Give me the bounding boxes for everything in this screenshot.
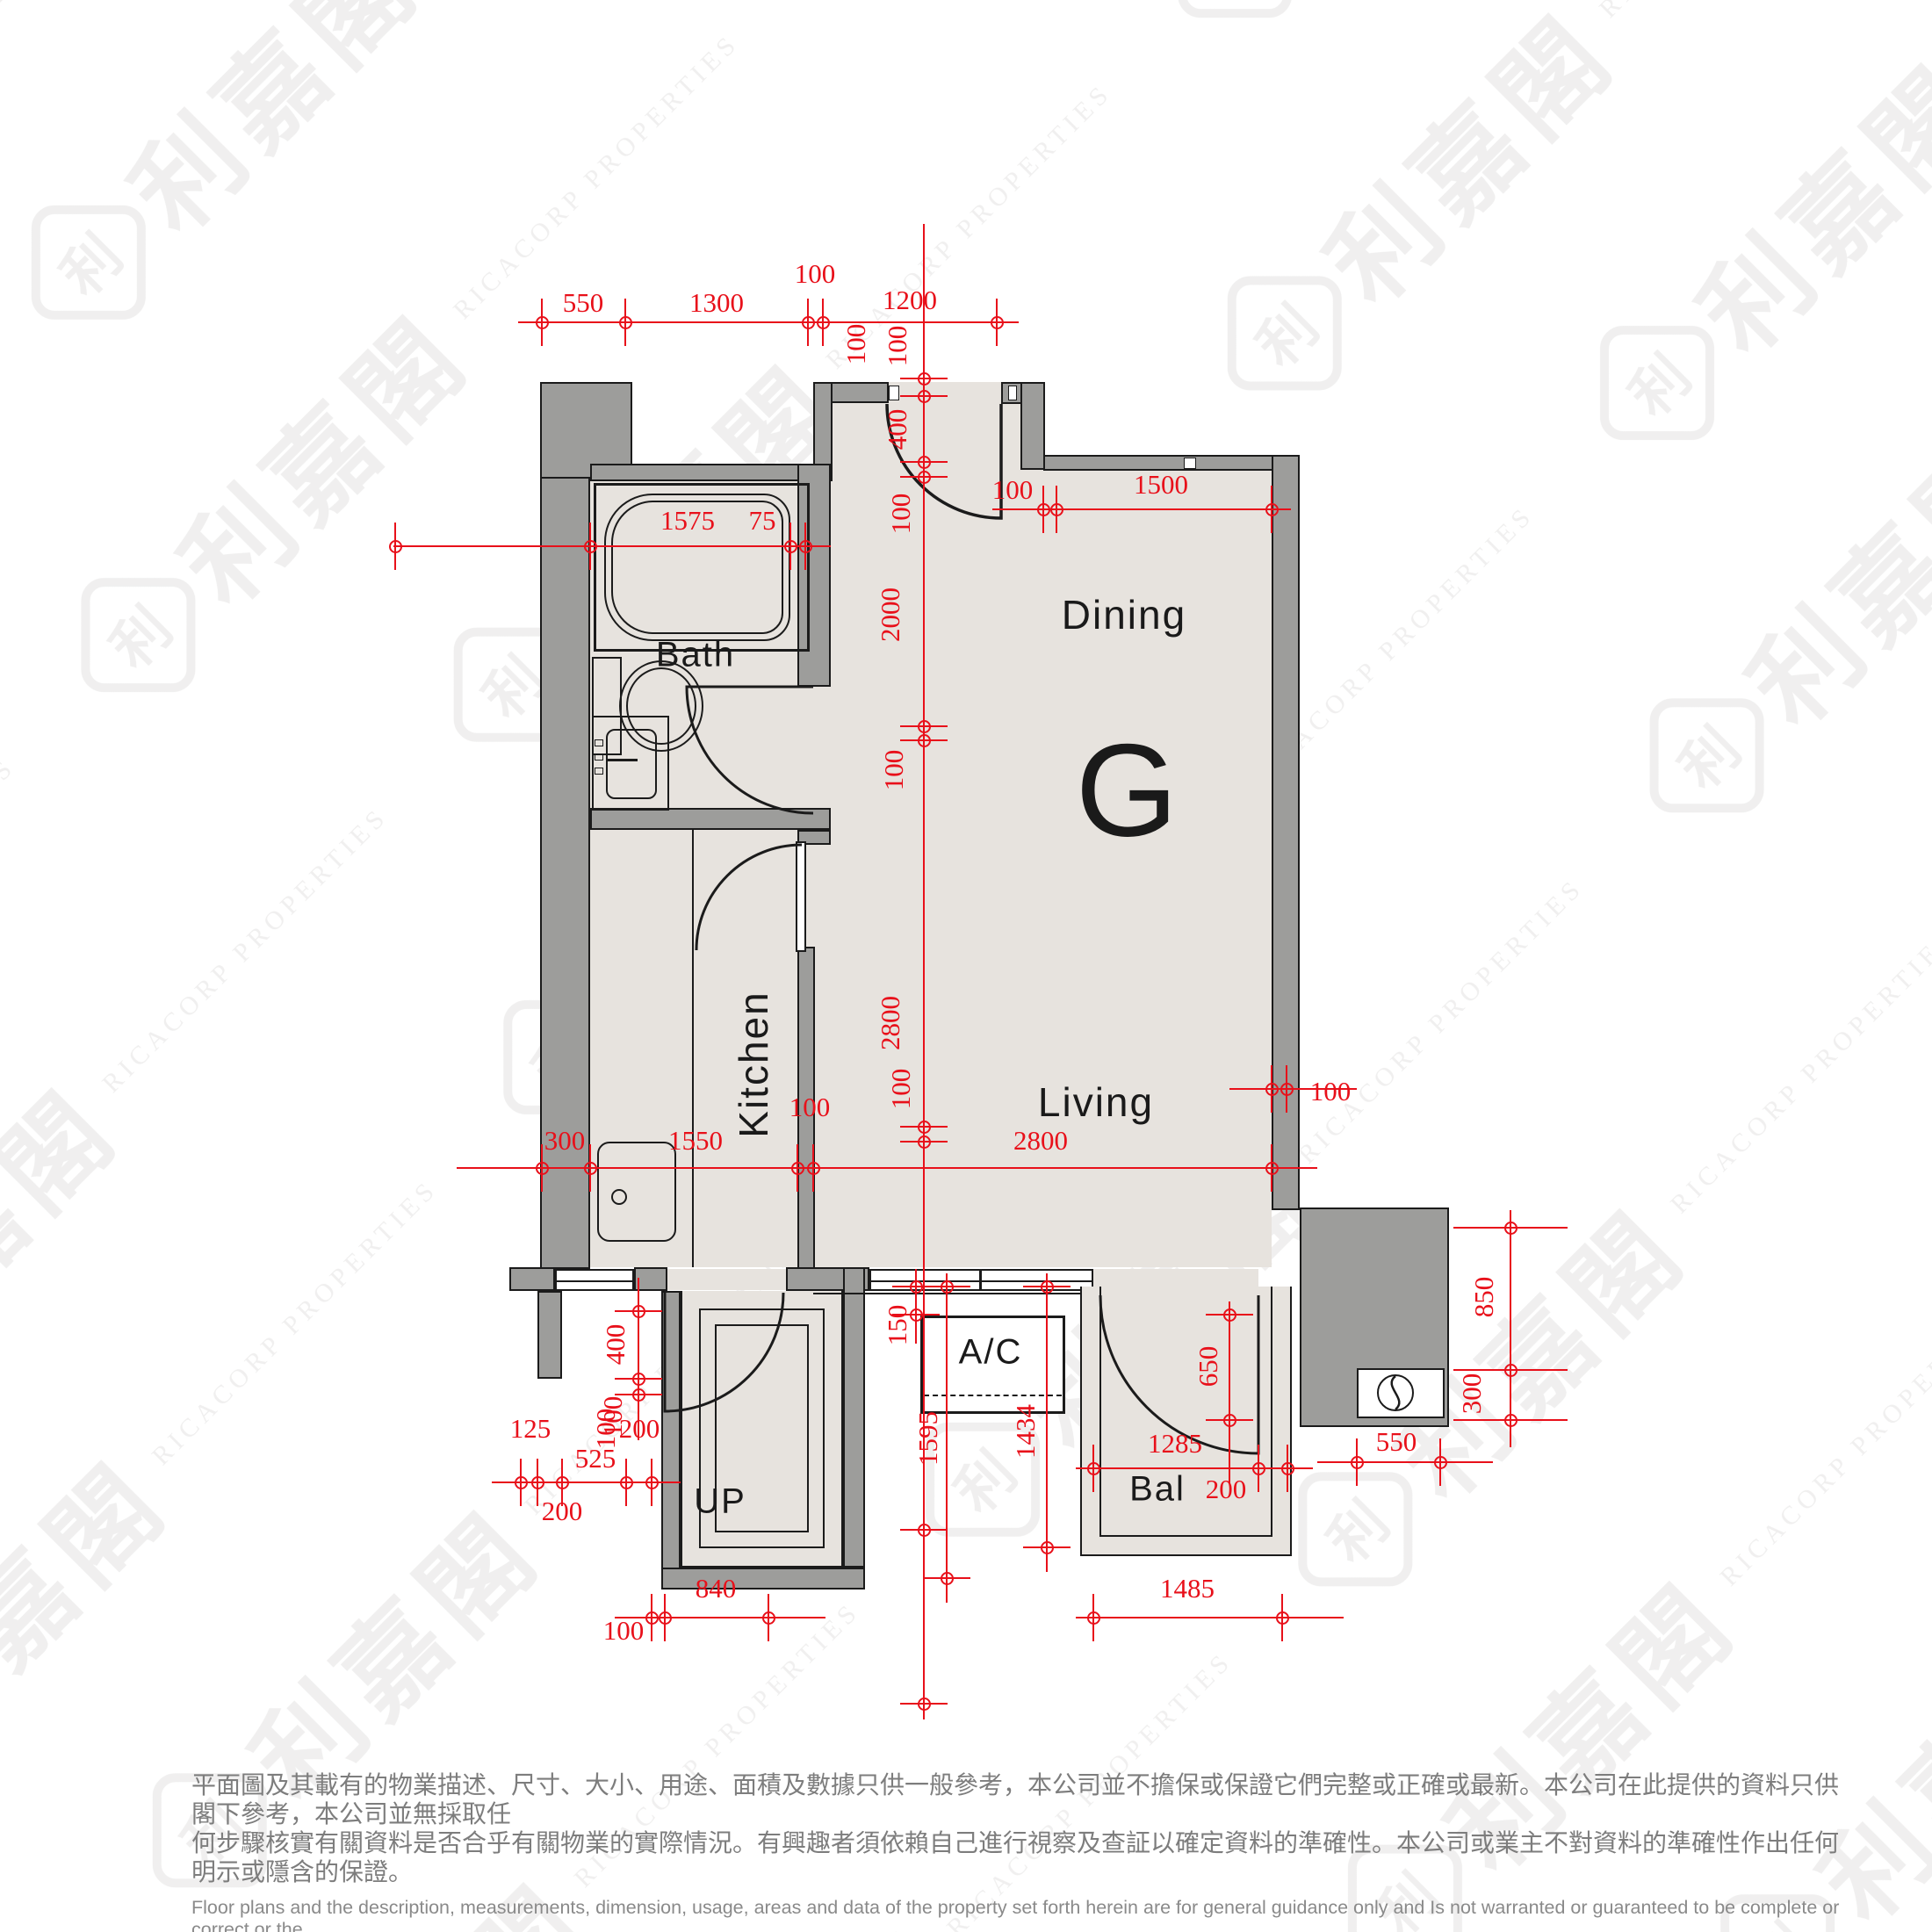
label-up: UP [694, 1482, 746, 1522]
label-dining: Dining [1062, 591, 1186, 638]
balcony-door-arc [1100, 1295, 1258, 1453]
bath-door-arc [687, 687, 813, 813]
entrance-door-arc [887, 404, 1001, 518]
disclaimer-zh-1: 平面圖及其載有的物業描述、尺寸、大小、用途、面積及數據只供一般參考，本公司並不擔… [191, 1770, 1842, 1828]
disclaimer-zh-2: 何步驟核實有關資料是否合乎有關物業的實際情況。有興趣者須依賴自己進行視察及查証以… [191, 1828, 1842, 1886]
floorplan-page: 利利嘉閣RICACORP PROPERTIES利利嘉閣RICACORP PROP… [0, 0, 1932, 1932]
disclaimer: 平面圖及其載有的物業描述、尺寸、大小、用途、面積及數據只供一般參考，本公司並不擔… [191, 1770, 1842, 1932]
stair-door-arc [665, 1293, 783, 1411]
label-ac: A/C [959, 1333, 1023, 1373]
label-living: Living [1038, 1078, 1154, 1126]
label-bal: Bal [1129, 1470, 1186, 1510]
label-unit: G [1076, 715, 1180, 867]
disclaimer-en-1: Floor plans and the description, measure… [191, 1897, 1842, 1932]
label-bath: Bath [656, 636, 735, 675]
label-kitchen: Kitchen [730, 991, 777, 1137]
kitchen-door-arc [696, 845, 802, 950]
door-arcs [0, 0, 1932, 1932]
disclaimer-en: Floor plans and the description, measure… [191, 1897, 1842, 1932]
drain-symbol-curve [1392, 1376, 1400, 1409]
